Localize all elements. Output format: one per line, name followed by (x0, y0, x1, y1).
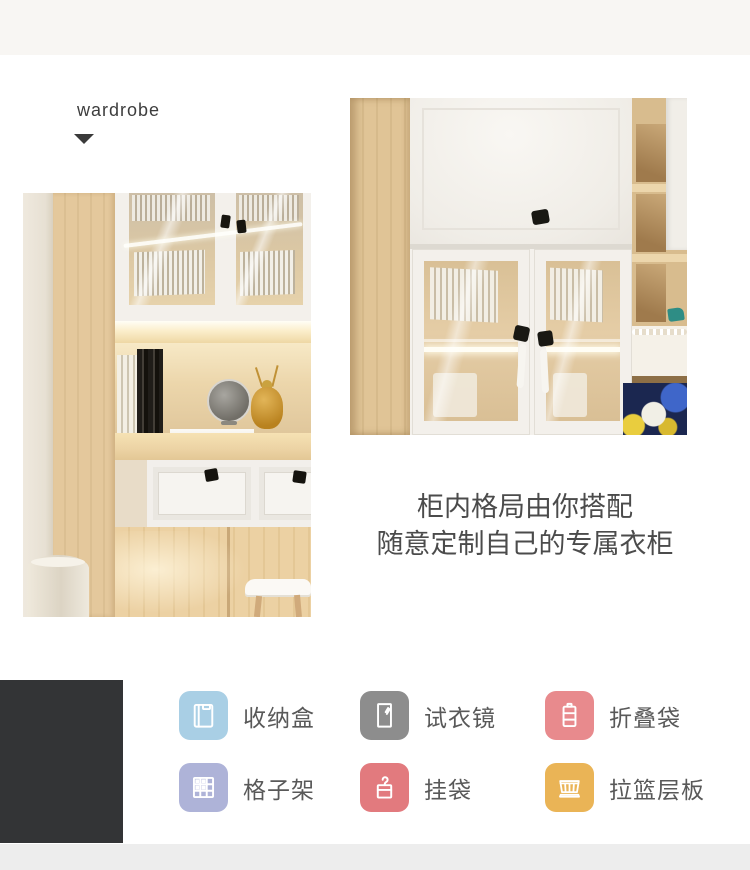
right-product-photo (350, 98, 687, 435)
shelf-board (632, 254, 687, 262)
wall (23, 193, 53, 617)
top-strip (0, 0, 750, 55)
accessory-label: 挂袋 (424, 771, 472, 805)
wood-ledge (632, 376, 687, 383)
cubby (636, 124, 666, 182)
light-spot (115, 531, 253, 617)
desk-clock (207, 379, 251, 423)
bottom-strip (0, 844, 750, 870)
accessory-item-pullout-basket: 拉篮层板 (545, 763, 705, 812)
caption-line-1: 柜内格局由你搭配 (360, 489, 690, 526)
chair-seat (245, 579, 311, 597)
drawer-handle (204, 468, 219, 482)
black-books (137, 349, 163, 433)
glass-pane (129, 193, 215, 305)
lower-wood-panel (115, 527, 311, 617)
accessory-item-storage-box: 收纳盒 (179, 691, 315, 740)
desk-drawers (147, 460, 311, 527)
stool-top (31, 557, 85, 567)
glass-pane (546, 261, 620, 421)
folding-bag-icon (545, 691, 594, 740)
open-shelf (115, 343, 311, 433)
accessory-item-hanging-bag: 挂袋 (360, 763, 472, 812)
door-frame (422, 108, 620, 230)
drawer-handle (292, 470, 307, 484)
door-handle (220, 214, 231, 228)
accessories-panel: 配件 任你搭 (0, 680, 123, 843)
door-handle (236, 220, 246, 234)
product-detail-page: wardrobe (0, 0, 750, 870)
glass-reflection (424, 261, 518, 421)
hero-caption: 柜内格局由你搭配 随意定制自己的专属衣柜 (360, 489, 690, 563)
white-books (117, 355, 137, 433)
accessory-label: 拉篮层板 (609, 771, 705, 805)
antler-decor (271, 365, 278, 387)
wall-painting (623, 383, 687, 435)
cabinet-side-panel (53, 193, 115, 617)
accessory-label: 格子架 (243, 771, 315, 805)
glass-reflection (236, 193, 303, 305)
accessory-item-grid-shelf: 格子架 (179, 763, 315, 812)
glass-pane (424, 261, 518, 421)
accessory-label: 收纳盒 (243, 699, 315, 733)
drawer-front (153, 467, 251, 520)
pullout-basket-icon (545, 763, 594, 812)
storage-box-icon (179, 691, 228, 740)
white-cabinet (410, 98, 632, 435)
upper-glass-doors (115, 193, 311, 321)
fitting-mirror-icon (360, 691, 409, 740)
glass-door (412, 249, 530, 435)
hanging-bag-icon (360, 763, 409, 812)
cubby (636, 264, 666, 322)
caption-line-2: 随意定制自己的专属衣柜 (360, 526, 690, 563)
gold-vase (251, 387, 283, 429)
cubby (636, 194, 666, 252)
glass-pane (236, 193, 303, 305)
brand-text: wardrobe (77, 100, 160, 121)
caret-down-icon (74, 134, 94, 144)
flap-door (410, 98, 632, 244)
door-handle (513, 325, 531, 343)
glass-reflection (546, 261, 620, 421)
grid-shelf-icon (179, 763, 228, 812)
door-handle (537, 330, 554, 347)
accessory-label: 折叠袋 (609, 699, 681, 733)
glass-reflection (129, 193, 215, 305)
teal-decor (667, 307, 685, 322)
desk-top (115, 433, 311, 460)
wood-side-panel (350, 98, 410, 435)
clock-base (221, 421, 237, 425)
left-product-photo (23, 193, 311, 617)
accessory-item-folding-bag: 折叠袋 (545, 691, 681, 740)
door-handle (531, 209, 550, 226)
accessory-label: 试衣镜 (424, 699, 496, 733)
white-door-panel (666, 98, 687, 250)
accessory-item-fitting-mirror: 试衣镜 (360, 691, 496, 740)
led-strip-glow (115, 321, 311, 343)
led-strip (632, 329, 687, 335)
